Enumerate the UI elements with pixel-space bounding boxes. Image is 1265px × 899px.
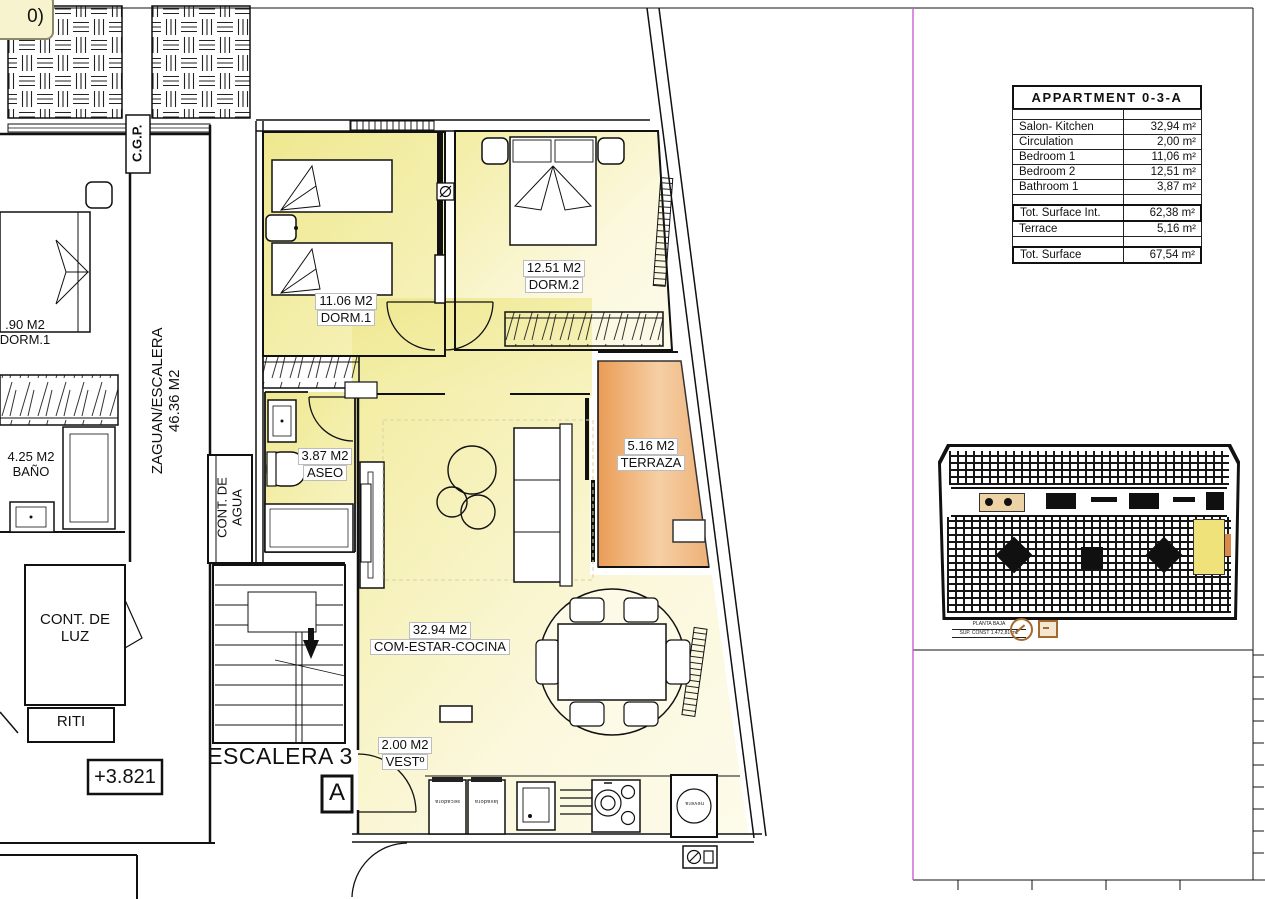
table-row: Bedroom 1 11,06 m²: [1012, 149, 1202, 165]
table-row-terrace: Terrace 5,16 m²: [1012, 221, 1202, 237]
sheet-corner-note: 0): [0, 0, 54, 40]
apartment-summary-table: APPARTMENT 0-3-A Salon- Kitchen 32,94 m²…: [1012, 85, 1202, 264]
label-dorm1: 11.06 M2 DORM.1: [300, 293, 392, 326]
label-zaguan: ZAGUAN/ESCALERA 46.36 M2: [150, 326, 184, 476]
key-plan-corridor: [951, 487, 1227, 517]
key-plan-overview: [938, 444, 1240, 620]
label-washer-1: secadora: [432, 798, 463, 804]
chair: [536, 640, 560, 684]
label-cont-agua: CONT. DE AGUA: [215, 456, 244, 560]
washer-1: [429, 780, 466, 834]
label-cont-luz: CONT. DE LUZ: [30, 612, 120, 646]
table-row: Bathroom 1 3,87 m²: [1012, 179, 1202, 195]
nightstand: [482, 138, 508, 164]
table-row: Circulation 2,00 m²: [1012, 134, 1202, 150]
label-cgp: C.G.P.: [131, 104, 146, 182]
terrace-unit: [673, 520, 705, 542]
stairs: [213, 565, 345, 743]
floor-plan-page: 0) C.G.P. .90 M2 DORM.1 4.25 M2 BAÑO ZAG…: [0, 0, 1265, 899]
corner-note-text: 0): [27, 6, 44, 28]
label-vest: 2.00 M2 VESTº: [372, 737, 438, 770]
label-aseo: 3.87 M2 ASEO: [292, 448, 358, 481]
label-section-a: A: [323, 780, 351, 807]
label-terraza: 5.16 M2 TERRAZA: [610, 438, 692, 471]
table-spacer: [1012, 109, 1202, 120]
label-washer-2: lavadora: [471, 798, 502, 804]
nightstand: [266, 215, 296, 241]
label-dorm2: 12.51 M2 DORM.2: [508, 260, 600, 293]
chair: [624, 702, 658, 726]
label-salon: 32.94 M2 COM-ESTAR-COCINA: [372, 622, 508, 655]
table-row-total: Tot. Surface 67,54 m²: [1012, 246, 1202, 264]
table-row-total-int: Tot. Surface Int. 62,38 m²: [1012, 204, 1202, 222]
label-level: +3.821: [90, 766, 160, 788]
label-bano: 4.25 M2 BAÑO: [0, 450, 62, 479]
washer-2: [468, 780, 505, 834]
chair: [570, 598, 604, 622]
dorm2-wardrobe: [505, 312, 663, 346]
label-fridge: nevera: [676, 800, 713, 806]
section-marker-icon: [1038, 620, 1058, 638]
north-compass-icon: [1010, 618, 1033, 641]
sofa: [514, 428, 564, 582]
dining-table: [558, 624, 666, 700]
table-title: APPARTMENT 0-3-A: [1012, 85, 1202, 110]
chair: [666, 640, 690, 684]
key-plan-highlighted-unit: [1193, 519, 1225, 575]
nightstand: [598, 138, 624, 164]
label-escalera: ESCALERA 3: [210, 744, 350, 770]
chair: [624, 598, 658, 622]
window-dorm1: [350, 121, 434, 130]
tv-unit: [361, 484, 371, 562]
table-row: Salon- Kitchen 32,94 m²: [1012, 119, 1202, 135]
table-row: Bedroom 2 12,51 m²: [1012, 164, 1202, 180]
edge-tick-marks: [958, 655, 1264, 890]
diameter-symbol: [437, 183, 454, 200]
key-plan-lobby: [979, 493, 1025, 512]
label-neighbor-dorm: .90 M2 DORM.1: [0, 318, 60, 347]
chair: [570, 702, 604, 726]
label-riti: RITI: [32, 714, 110, 731]
neighbor-furniture: [0, 182, 118, 532]
